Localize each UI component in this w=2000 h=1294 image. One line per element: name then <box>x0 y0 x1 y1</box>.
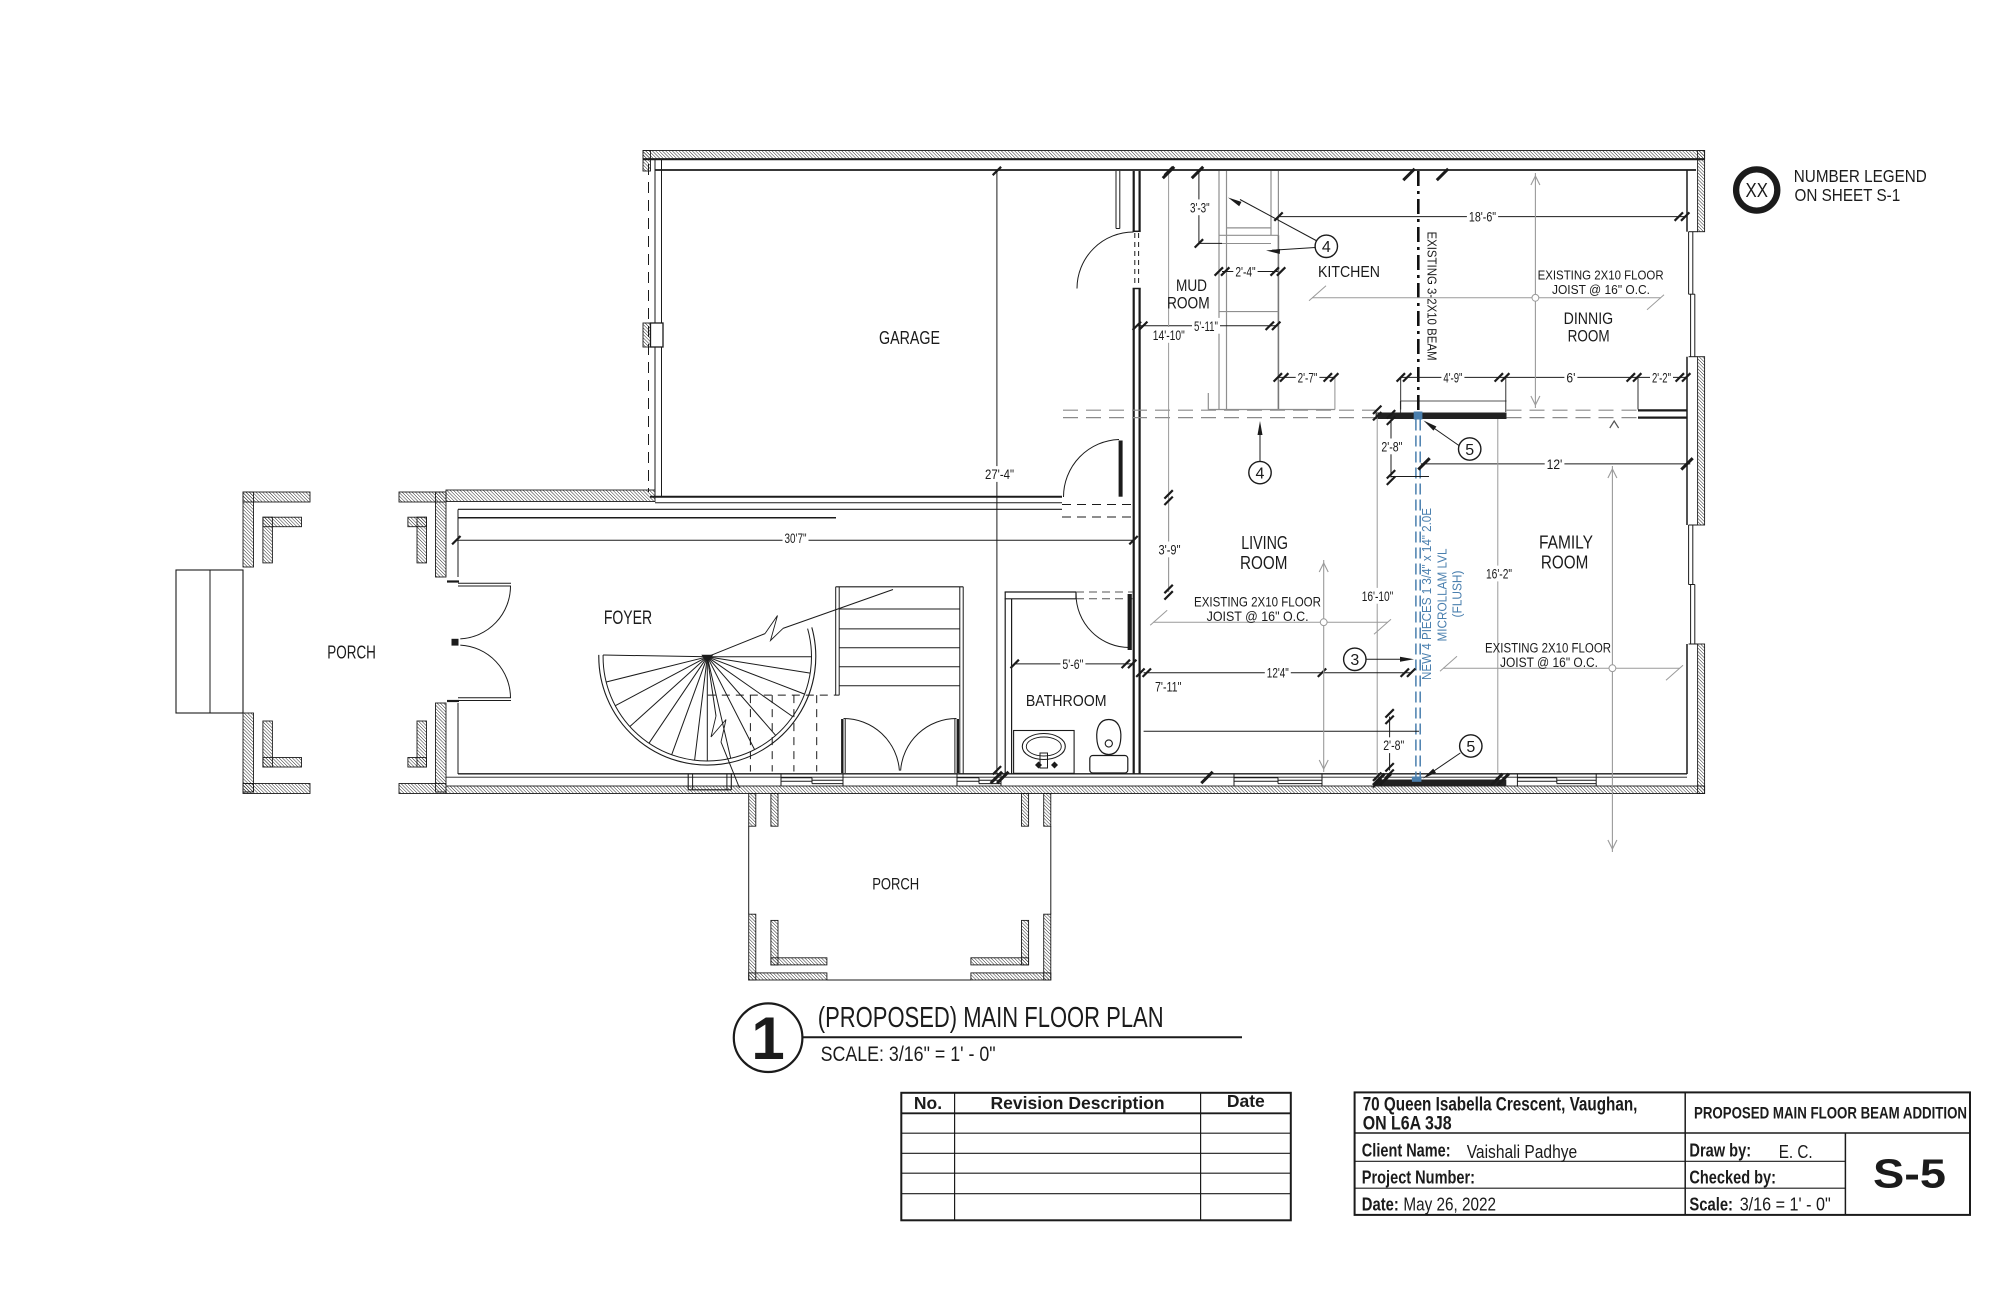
svg-text:GARAGE: GARAGE <box>879 328 940 348</box>
svg-text:PROPOSED MAIN FLOOR BEAM ADDI: PROPOSED MAIN FLOOR BEAM ADDITION <box>1694 1105 1967 1123</box>
svg-text:3'-3": 3'-3" <box>1190 200 1210 215</box>
svg-text:JOIST @ 16" O.C.: JOIST @ 16" O.C. <box>1207 608 1309 624</box>
svg-text:DINNIG: DINNIG <box>1564 309 1614 328</box>
svg-text:S-5: S-5 <box>1873 1151 1946 1197</box>
svg-text:E. C.: E. C. <box>1779 1141 1813 1162</box>
svg-text:6': 6' <box>1566 370 1575 385</box>
svg-text:PORCH: PORCH <box>872 874 919 893</box>
svg-text:NEW 4 PIECES 1 3/4" x 14" 2.0: NEW 4 PIECES 1 3/4" x 14" 2.0E <box>1419 508 1434 680</box>
svg-text:MUD: MUD <box>1176 276 1207 295</box>
svg-text:16'-2": 16'-2" <box>1486 567 1512 582</box>
svg-text:XX: XX <box>1746 180 1768 202</box>
svg-text:7'-11": 7'-11" <box>1155 680 1181 695</box>
svg-text:FOYER: FOYER <box>604 607 652 629</box>
svg-text:ROOM: ROOM <box>1541 553 1588 573</box>
svg-text:2'-4": 2'-4" <box>1235 265 1255 280</box>
svg-text:5: 5 <box>1465 442 1474 459</box>
svg-text:Date:: Date: <box>1362 1194 1399 1215</box>
svg-text:KITCHEN: KITCHEN <box>1318 264 1380 281</box>
svg-text:SCALE: 3/16" = 1' - 0": SCALE: 3/16" = 1' - 0" <box>821 1043 996 1066</box>
svg-text:30'7": 30'7" <box>785 531 807 546</box>
svg-text:Scale:: Scale: <box>1689 1194 1733 1215</box>
svg-text:BATHROOM: BATHROOM <box>1026 693 1107 710</box>
svg-text:1: 1 <box>751 1005 784 1072</box>
svg-text:EXISTING 2X10 FLOOR: EXISTING 2X10 FLOOR <box>1485 640 1611 655</box>
svg-text:May 26, 2022: May 26, 2022 <box>1403 1194 1496 1215</box>
svg-text:LIVING: LIVING <box>1241 533 1288 553</box>
svg-text:3/16 = 1' - 0": 3/16 = 1' - 0" <box>1740 1194 1831 1215</box>
svg-text:EXISTING 2X10 FLOOR: EXISTING 2X10 FLOOR <box>1538 268 1664 283</box>
svg-text:2'-8": 2'-8" <box>1383 738 1404 753</box>
svg-text:JOIST @ 16" O.C.: JOIST @ 16" O.C. <box>1500 655 1598 670</box>
svg-text:Project Number:: Project Number: <box>1362 1167 1475 1188</box>
svg-text:4: 4 <box>1256 465 1265 482</box>
svg-text:16'-10": 16'-10" <box>1362 589 1394 604</box>
svg-text:JOIST @ 16" O.C.: JOIST @ 16" O.C. <box>1552 282 1650 297</box>
svg-text:(FLUSH): (FLUSH) <box>1450 571 1465 618</box>
svg-text:PORCH: PORCH <box>327 643 376 663</box>
svg-text:Checked by:: Checked by: <box>1689 1167 1776 1188</box>
svg-text:MICROLLAM LVL: MICROLLAM LVL <box>1435 549 1450 642</box>
svg-text:Draw by:: Draw by: <box>1689 1140 1751 1161</box>
svg-text:3: 3 <box>1350 652 1359 669</box>
svg-text:ROOM: ROOM <box>1240 553 1287 573</box>
svg-text:(PROPOSED) MAIN FLOOR PLAN: (PROPOSED) MAIN FLOOR PLAN <box>818 1002 1164 1034</box>
svg-text:ON SHEET S-1: ON SHEET S-1 <box>1795 185 1901 205</box>
svg-text:12': 12' <box>1547 457 1563 472</box>
svg-text:5'-6": 5'-6" <box>1062 657 1083 672</box>
svg-text:2'-2": 2'-2" <box>1652 370 1671 385</box>
svg-text:NUMBER LEGEND: NUMBER LEGEND <box>1794 166 1927 186</box>
svg-text:5'-11": 5'-11" <box>1194 319 1218 334</box>
svg-text:2'-7": 2'-7" <box>1298 370 1318 385</box>
svg-text:EXISTING 3-2X10 BEAM: EXISTING 3-2X10 BEAM <box>1425 232 1440 361</box>
svg-text:5: 5 <box>1466 739 1475 756</box>
svg-text:FAMILY: FAMILY <box>1539 533 1593 553</box>
svg-text:14'-10": 14'-10" <box>1153 328 1185 343</box>
svg-text:Date: Date <box>1227 1091 1265 1111</box>
svg-text:4'-9": 4'-9" <box>1443 370 1462 385</box>
svg-text:4: 4 <box>1322 239 1331 256</box>
svg-text:27'-4": 27'-4" <box>985 467 1014 482</box>
svg-text:Vaishali Padhye: Vaishali Padhye <box>1467 1141 1578 1162</box>
svg-text:ROOM: ROOM <box>1568 327 1610 346</box>
svg-text:Client Name:: Client Name: <box>1362 1140 1451 1161</box>
svg-text:ROOM: ROOM <box>1167 293 1210 312</box>
svg-text:3'-9": 3'-9" <box>1159 542 1181 557</box>
svg-text:ON L6A 3J8: ON L6A 3J8 <box>1363 1113 1452 1135</box>
svg-text:No.: No. <box>914 1093 942 1113</box>
svg-text:Revision Description: Revision Description <box>991 1093 1165 1113</box>
svg-text:18'-6": 18'-6" <box>1469 210 1496 225</box>
svg-text:12'4": 12'4" <box>1267 666 1289 681</box>
svg-text:2'-8": 2'-8" <box>1381 439 1402 454</box>
